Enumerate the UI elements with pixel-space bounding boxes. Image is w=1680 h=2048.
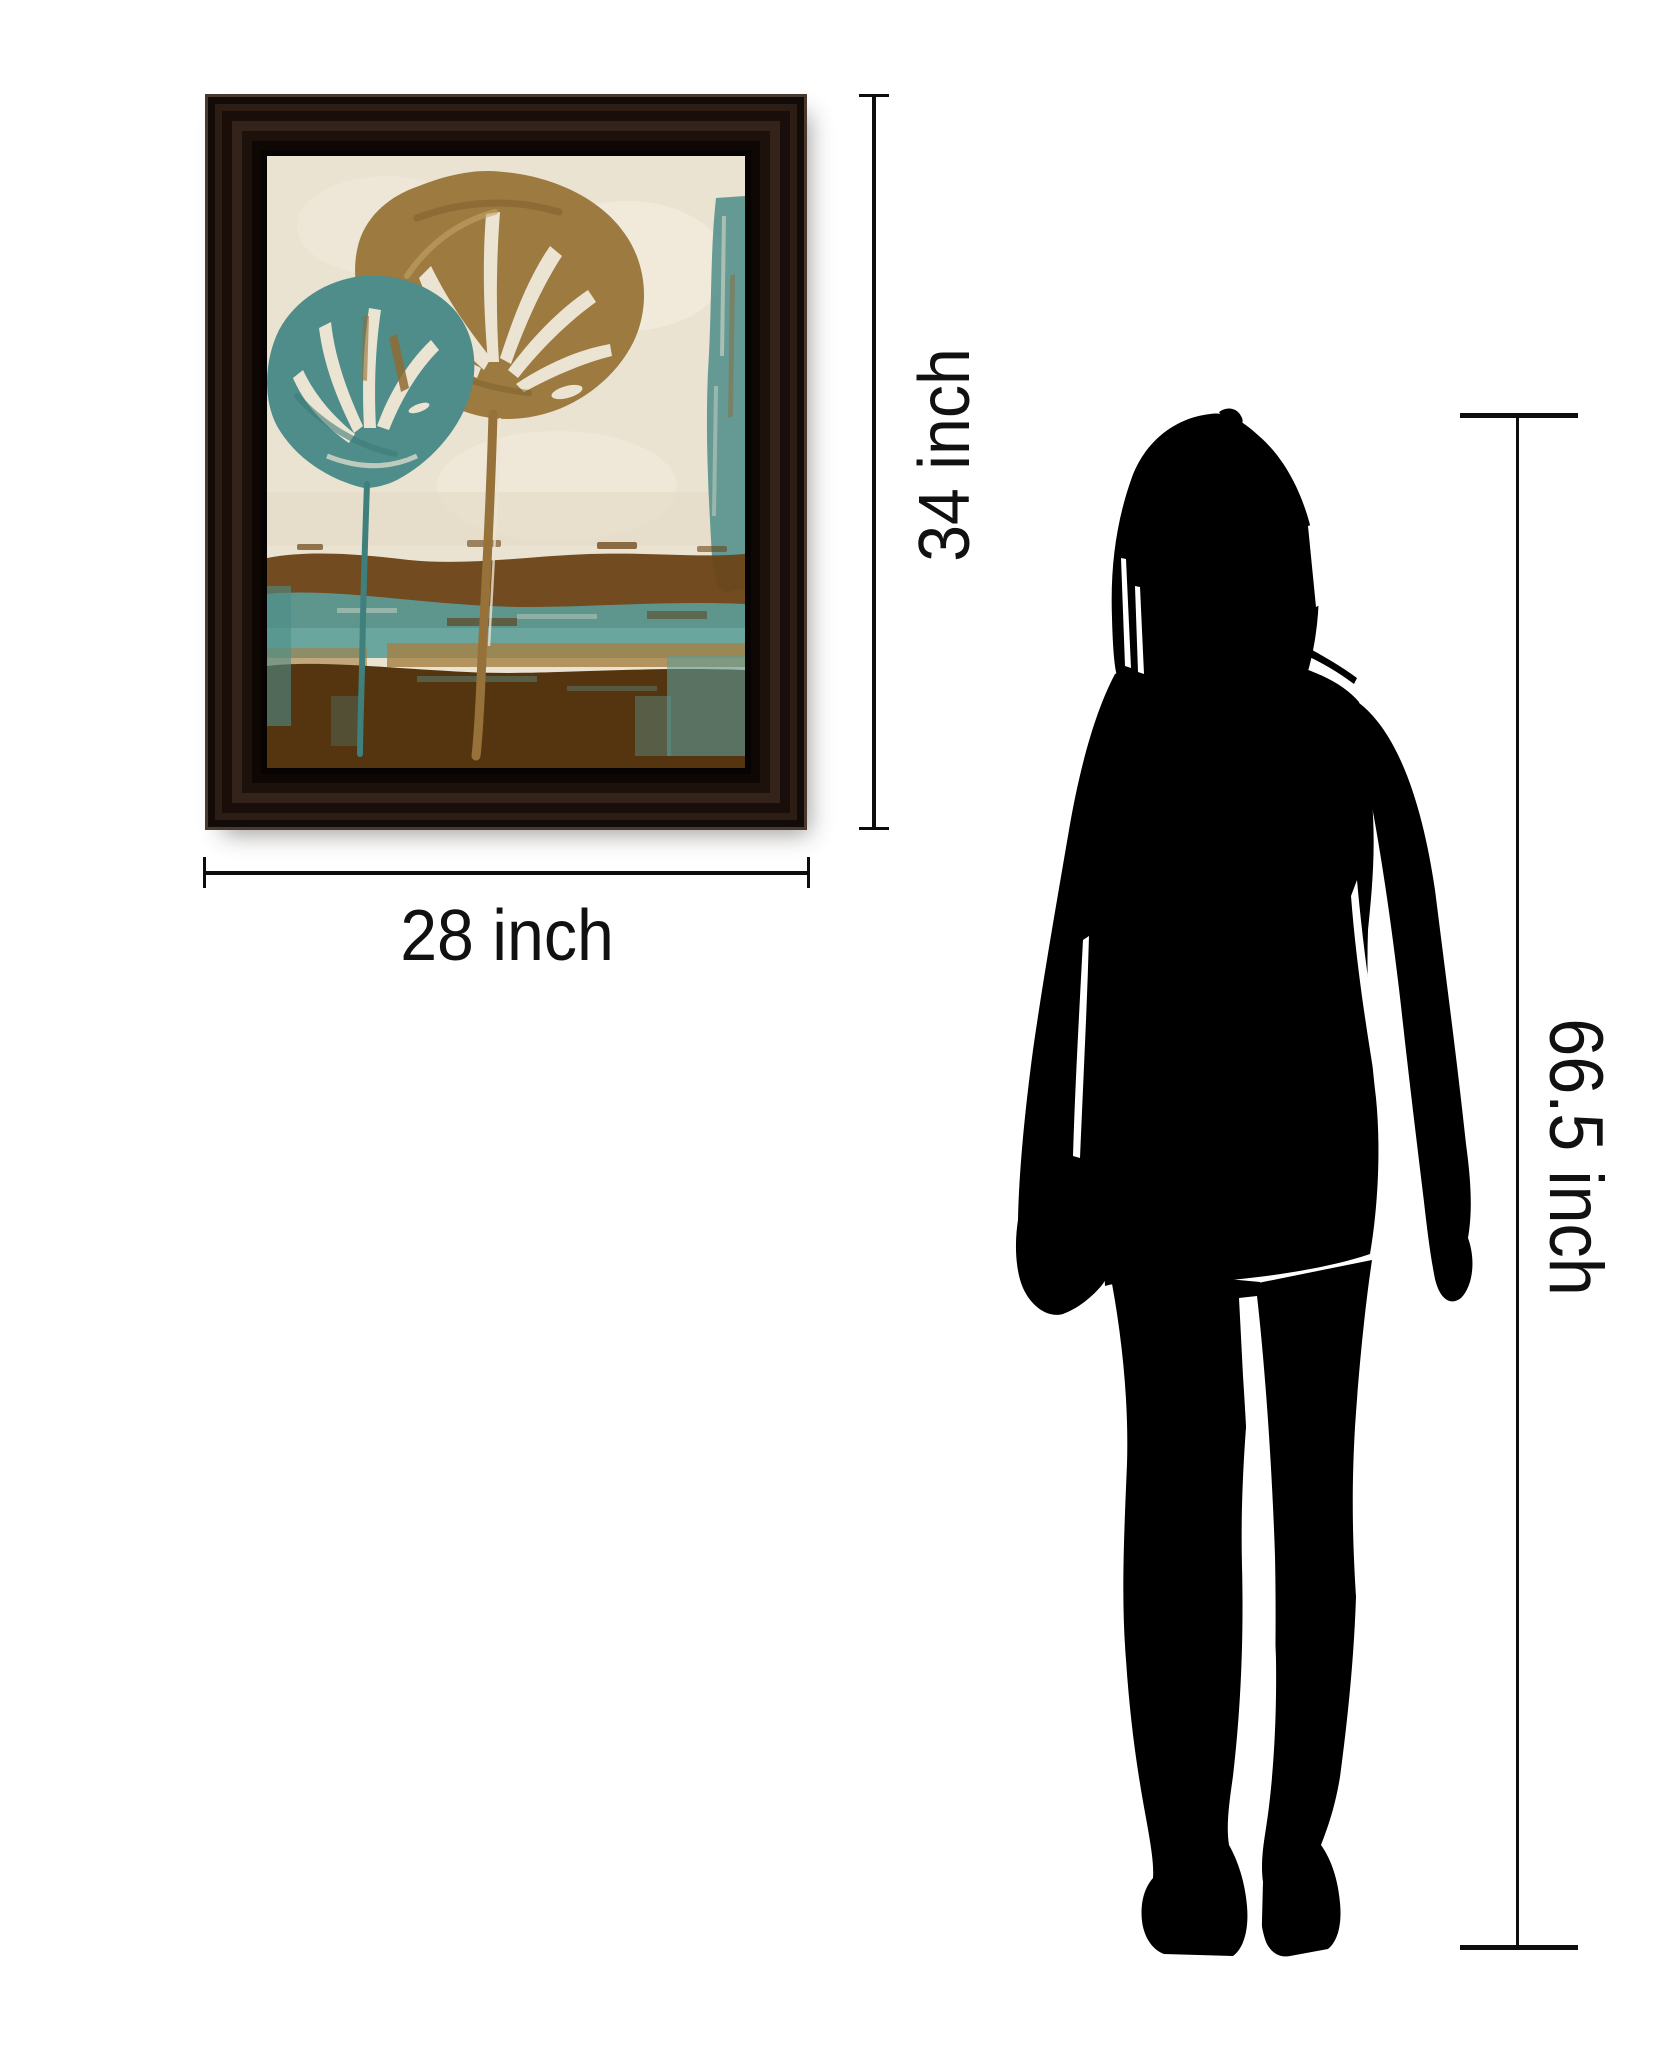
person-height-dimension-line: [1516, 415, 1519, 1949]
frame-width-label: 28 inch: [369, 896, 645, 976]
frame-height-top-cap: [859, 94, 889, 97]
artwork-area: [267, 156, 745, 768]
frame-height-bottom-cap: [859, 827, 889, 830]
frame-width-right-tick: [807, 857, 810, 888]
person-height-bottom-cap: [1460, 1945, 1578, 1950]
frame-height-dimension-line: [872, 94, 876, 830]
bottom-abstract-band: [267, 540, 745, 768]
artwork-painting: [267, 156, 745, 768]
teal-edge-band: [707, 196, 745, 592]
frame-width-left-tick: [203, 857, 206, 888]
woman-silhouette: [1005, 408, 1495, 1960]
frame-width-dimension-line: [203, 871, 809, 875]
person-height-top-cap: [1460, 413, 1578, 418]
picture-frame: [205, 94, 807, 830]
size-comparison-diagram: 34 inch 28 inch: [0, 0, 1680, 2048]
frame-height-label: 34 inch: [905, 335, 985, 574]
person-height-label: 66.5 inch: [1535, 995, 1615, 1319]
